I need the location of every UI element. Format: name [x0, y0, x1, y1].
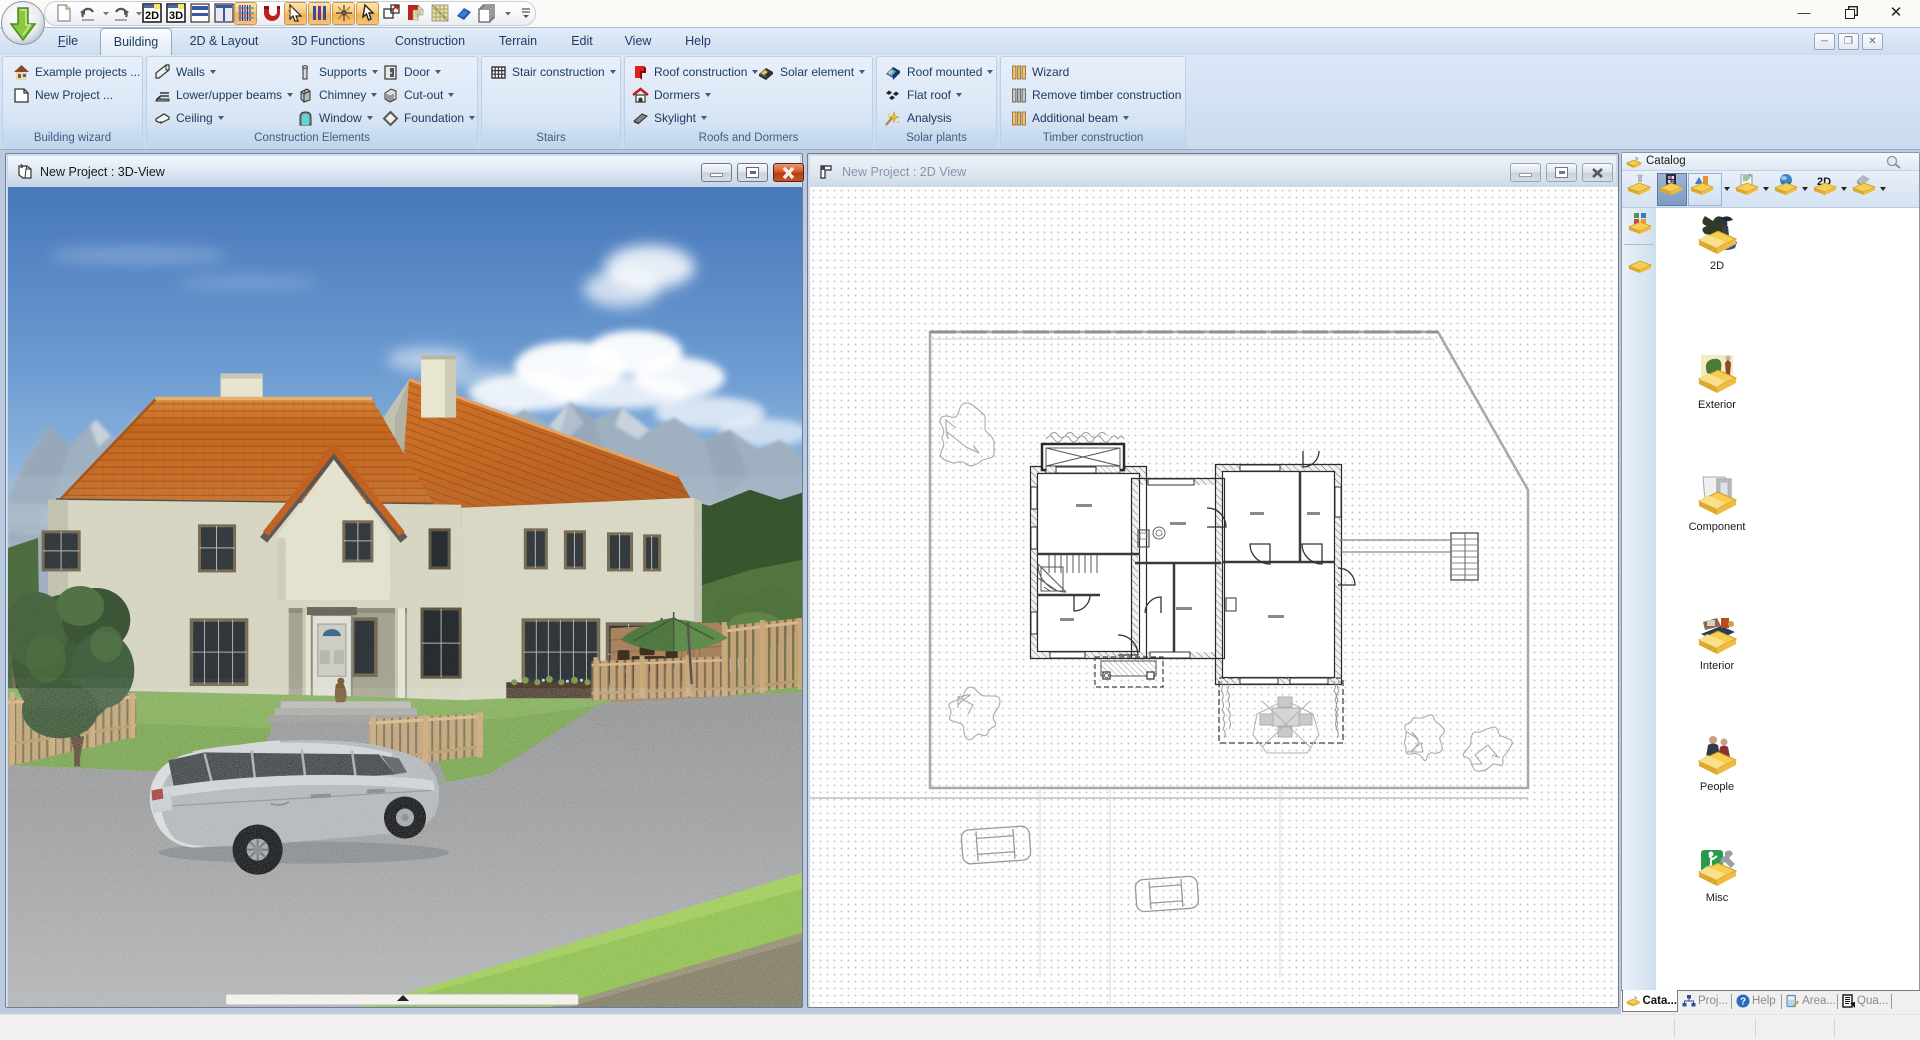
svg-text:?: ? [1740, 997, 1746, 1008]
svg-text:2D: 2D [145, 10, 159, 22]
svg-text:3D: 3D [169, 10, 183, 22]
